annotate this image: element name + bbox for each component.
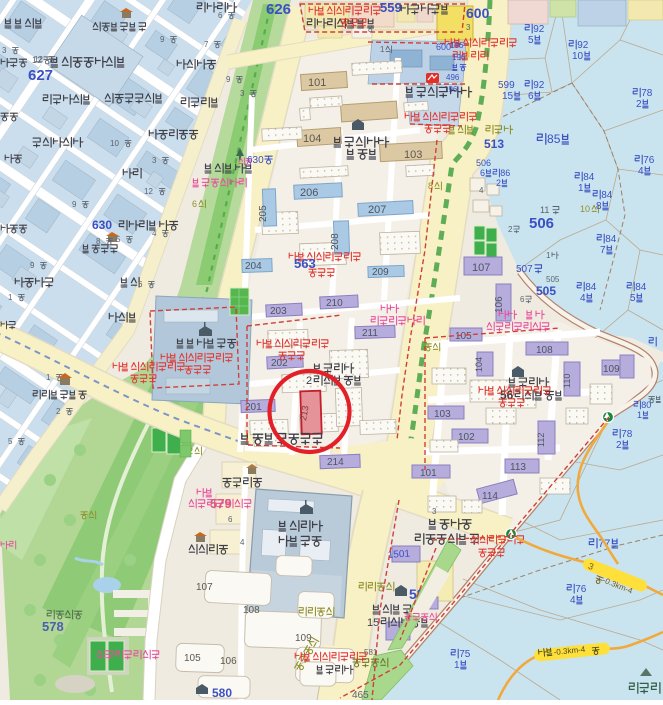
svg-text:112: 112 <box>536 433 546 447</box>
svg-text:104: 104 <box>474 357 484 372</box>
svg-text:84: 84 <box>583 172 595 183</box>
svg-text:6: 6 <box>192 199 197 209</box>
svg-text:92: 92 <box>533 24 545 35</box>
svg-text:206: 206 <box>300 187 318 199</box>
svg-text:12: 12 <box>144 187 153 196</box>
svg-text:209: 209 <box>372 267 389 278</box>
svg-text:1: 1 <box>46 373 51 382</box>
svg-text:103: 103 <box>434 409 451 420</box>
svg-text:4: 4 <box>580 293 586 304</box>
svg-text:106: 106 <box>220 656 237 667</box>
svg-text:1: 1 <box>454 660 460 671</box>
svg-text:84: 84 <box>601 190 613 201</box>
svg-text:6: 6 <box>528 91 534 102</box>
svg-text:506: 506 <box>529 215 554 232</box>
svg-text:196: 196 <box>452 53 466 62</box>
svg-text:9: 9 <box>226 75 231 84</box>
svg-text:1: 1 <box>578 183 584 194</box>
svg-text:6: 6 <box>138 280 143 289</box>
svg-text:92: 92 <box>577 40 589 51</box>
svg-text:8: 8 <box>96 237 101 246</box>
svg-text:4: 4 <box>240 538 245 547</box>
svg-text:9: 9 <box>72 200 77 209</box>
svg-text:204: 204 <box>245 261 262 272</box>
svg-text:3: 3 <box>466 23 471 32</box>
svg-text:15: 15 <box>367 617 379 629</box>
svg-text:92: 92 <box>533 80 545 91</box>
svg-text:8: 8 <box>368 25 373 34</box>
svg-text:110: 110 <box>562 374 572 388</box>
svg-text:4: 4 <box>570 595 576 606</box>
svg-text:108: 108 <box>536 345 553 356</box>
svg-text:10: 10 <box>110 139 119 148</box>
svg-text:113: 113 <box>510 462 526 473</box>
svg-text:2: 2 <box>616 440 622 451</box>
svg-text:9: 9 <box>160 35 165 44</box>
svg-text:626: 626 <box>266 1 291 18</box>
svg-text:5: 5 <box>528 35 534 46</box>
svg-text:600: 600 <box>466 5 490 21</box>
svg-text:6: 6 <box>218 11 223 20</box>
svg-text:1: 1 <box>637 410 642 420</box>
svg-text:105: 105 <box>184 653 201 664</box>
svg-text:103: 103 <box>404 149 422 161</box>
svg-text:76: 76 <box>643 155 655 166</box>
svg-text:4: 4 <box>152 229 157 238</box>
svg-text:513: 513 <box>484 137 504 151</box>
svg-text:107: 107 <box>196 582 213 593</box>
svg-text:465: 465 <box>352 690 369 700</box>
svg-text:76: 76 <box>575 584 587 595</box>
svg-text:11: 11 <box>540 205 549 215</box>
svg-text:8: 8 <box>596 201 602 212</box>
svg-text:78: 78 <box>641 88 653 99</box>
svg-text:599: 599 <box>498 80 515 91</box>
svg-text:578: 578 <box>42 619 64 634</box>
svg-text:3: 3 <box>2 46 7 55</box>
svg-text:6: 6 <box>480 168 485 178</box>
svg-text:214: 214 <box>327 457 344 468</box>
svg-text:6: 6 <box>228 515 233 524</box>
svg-text:7: 7 <box>204 40 209 49</box>
svg-text:630: 630 <box>247 155 264 166</box>
svg-text:2: 2 <box>56 407 61 416</box>
svg-text:4: 4 <box>638 166 644 177</box>
svg-text:3: 3 <box>240 89 245 98</box>
svg-text:627: 627 <box>28 67 53 84</box>
svg-text:101: 101 <box>420 468 437 479</box>
svg-text:203: 203 <box>270 306 287 317</box>
svg-text:205: 205 <box>258 205 269 222</box>
svg-text:84: 84 <box>585 282 597 293</box>
svg-text:3: 3 <box>152 156 157 165</box>
svg-text:7: 7 <box>600 245 606 256</box>
svg-text:5: 5 <box>8 437 13 446</box>
svg-text:4: 4 <box>479 186 484 195</box>
svg-text:3: 3 <box>432 507 437 516</box>
svg-text:496: 496 <box>446 73 460 82</box>
svg-text:5: 5 <box>630 293 636 304</box>
svg-text:2: 2 <box>508 225 513 234</box>
svg-text:1: 1 <box>380 45 385 54</box>
svg-text:107: 107 <box>472 262 490 274</box>
svg-text:5: 5 <box>116 235 121 244</box>
svg-text:78: 78 <box>621 429 633 440</box>
svg-text:9: 9 <box>30 261 35 270</box>
svg-text:108: 108 <box>243 605 260 616</box>
svg-text:207: 207 <box>368 204 386 216</box>
svg-text:2: 2 <box>306 375 312 387</box>
svg-text:507: 507 <box>516 264 533 275</box>
svg-text:12: 12 <box>34 55 43 64</box>
svg-text:85: 85 <box>547 132 561 146</box>
svg-text:6: 6 <box>520 295 525 304</box>
svg-text:600: 600 <box>436 42 451 52</box>
svg-text:2: 2 <box>496 178 501 188</box>
svg-text:10: 10 <box>580 204 590 214</box>
svg-text:196: 196 <box>450 41 464 50</box>
svg-text:559: 559 <box>380 0 402 15</box>
svg-text:506: 506 <box>476 158 491 168</box>
svg-text:86: 86 <box>500 168 510 178</box>
svg-text:211: 211 <box>362 328 378 339</box>
svg-text:210: 210 <box>326 298 343 309</box>
svg-text:1: 1 <box>8 293 13 302</box>
svg-text:10: 10 <box>572 51 584 62</box>
svg-text:630: 630 <box>92 218 112 232</box>
svg-text:1: 1 <box>546 251 551 260</box>
svg-text:101: 101 <box>308 77 326 89</box>
svg-text:2: 2 <box>636 99 642 110</box>
svg-text:102: 102 <box>458 432 475 443</box>
svg-text:208: 208 <box>330 233 341 250</box>
svg-text:109: 109 <box>603 364 620 375</box>
svg-text:15: 15 <box>502 91 514 102</box>
svg-text:84: 84 <box>605 234 617 245</box>
svg-text:505: 505 <box>536 284 556 298</box>
svg-text:75: 75 <box>459 649 471 660</box>
svg-text:505: 505 <box>546 275 560 284</box>
svg-text:84: 84 <box>635 282 647 293</box>
svg-text:580: 580 <box>212 686 232 700</box>
svg-text:105: 105 <box>455 331 472 342</box>
svg-text:202: 202 <box>271 358 288 369</box>
svg-text:114: 114 <box>482 491 498 502</box>
svg-text:104: 104 <box>303 133 321 145</box>
svg-text:106: 106 <box>494 296 505 313</box>
